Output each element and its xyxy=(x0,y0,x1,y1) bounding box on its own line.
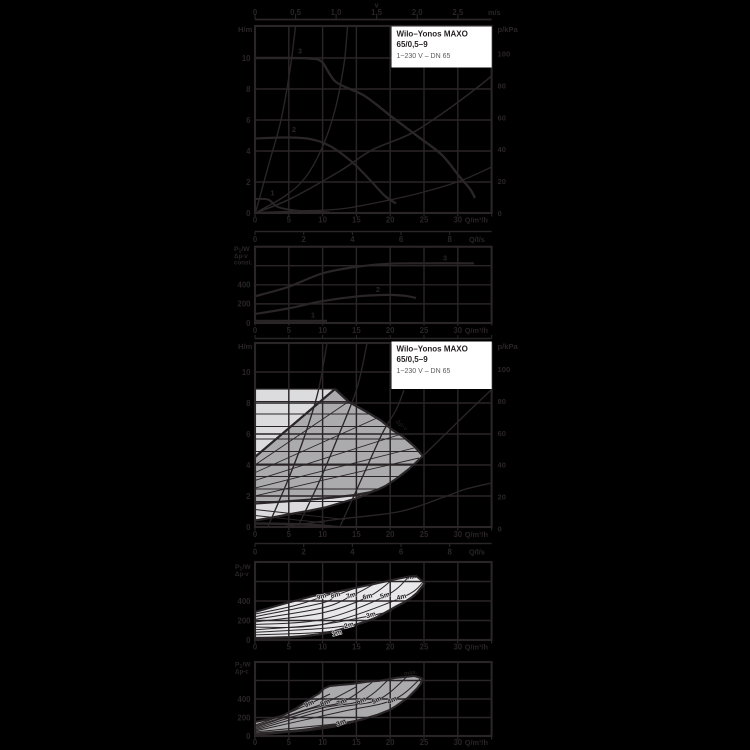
svg-text:0: 0 xyxy=(246,209,251,218)
svg-text:2: 2 xyxy=(246,492,251,501)
svg-text:2: 2 xyxy=(302,547,307,556)
svg-text:10: 10 xyxy=(318,738,327,747)
svg-text:2,0: 2,0 xyxy=(412,8,424,17)
svg-text:3: 3 xyxy=(298,47,302,56)
svg-text:0: 0 xyxy=(246,319,251,328)
svg-text:2: 2 xyxy=(292,125,296,134)
svg-text:8: 8 xyxy=(448,547,453,556)
svg-text:8: 8 xyxy=(246,399,251,408)
svg-text:0: 0 xyxy=(246,636,251,645)
svg-text:100: 100 xyxy=(498,365,511,374)
svg-text:Q/l/s: Q/l/s xyxy=(469,547,485,556)
svg-text:H/m: H/m xyxy=(238,25,253,34)
svg-text:20: 20 xyxy=(498,493,506,502)
svg-text:const.: const. xyxy=(234,260,253,267)
svg-text:Wilo–Yonos MAXO: Wilo–Yonos MAXO xyxy=(397,30,468,39)
svg-text:30: 30 xyxy=(453,326,462,335)
svg-text:25: 25 xyxy=(420,530,429,539)
svg-text:p/kPa: p/kPa xyxy=(498,25,519,34)
svg-text:200: 200 xyxy=(237,616,251,625)
svg-text:m/s: m/s xyxy=(488,8,501,17)
svg-text:6: 6 xyxy=(246,116,251,125)
svg-text:15: 15 xyxy=(352,643,361,652)
svg-text:Q/m³/h: Q/m³/h xyxy=(465,738,488,747)
svg-text:p/kPa: p/kPa xyxy=(498,342,519,351)
svg-text:60: 60 xyxy=(498,113,506,122)
svg-text:10: 10 xyxy=(318,530,327,539)
svg-text:20: 20 xyxy=(386,530,395,539)
svg-text:0,5: 0,5 xyxy=(290,8,302,17)
svg-text:20: 20 xyxy=(498,177,506,186)
svg-text:0: 0 xyxy=(498,209,502,218)
svg-text:400: 400 xyxy=(237,695,251,704)
svg-text:200: 200 xyxy=(237,713,251,722)
svg-text:400: 400 xyxy=(237,281,251,290)
svg-text:8: 8 xyxy=(448,235,453,244)
svg-text:65/0,5–9: 65/0,5–9 xyxy=(397,355,429,364)
svg-text:100: 100 xyxy=(498,50,511,59)
svg-text:30: 30 xyxy=(453,643,462,652)
svg-text:30: 30 xyxy=(453,738,462,747)
svg-text:200: 200 xyxy=(237,300,251,309)
svg-text:0: 0 xyxy=(246,523,251,532)
svg-text:Wilo–Yonos MAXO: Wilo–Yonos MAXO xyxy=(397,345,468,354)
svg-text:0: 0 xyxy=(253,8,258,17)
svg-text:8: 8 xyxy=(246,85,251,94)
svg-text:40: 40 xyxy=(498,461,506,470)
svg-text:2,5: 2,5 xyxy=(452,8,464,17)
svg-text:3: 3 xyxy=(443,254,447,263)
svg-text:0: 0 xyxy=(498,524,502,533)
svg-text:0: 0 xyxy=(253,326,258,335)
svg-text:0: 0 xyxy=(253,530,258,539)
svg-text:Q/m³/h: Q/m³/h xyxy=(465,216,488,225)
svg-text:20: 20 xyxy=(386,738,395,747)
svg-text:20: 20 xyxy=(386,643,395,652)
svg-text:4: 4 xyxy=(350,547,355,556)
svg-text:20: 20 xyxy=(386,216,395,225)
svg-text:80: 80 xyxy=(498,82,506,91)
svg-text:0: 0 xyxy=(253,547,258,556)
svg-text:H/m: H/m xyxy=(238,342,253,351)
svg-text:0: 0 xyxy=(253,643,258,652)
svg-text:2: 2 xyxy=(246,178,251,187)
svg-text:1,0: 1,0 xyxy=(331,8,343,17)
svg-text:5: 5 xyxy=(287,738,292,747)
svg-text:15: 15 xyxy=(352,738,361,747)
svg-text:25: 25 xyxy=(420,643,429,652)
svg-text:25: 25 xyxy=(420,216,429,225)
svg-text:400: 400 xyxy=(237,597,251,606)
svg-text:6: 6 xyxy=(246,430,251,439)
svg-text:30: 30 xyxy=(453,530,462,539)
svg-text:0: 0 xyxy=(253,216,258,225)
svg-text:65/0,5–9: 65/0,5–9 xyxy=(397,40,429,49)
svg-text:5: 5 xyxy=(287,530,292,539)
svg-text:10: 10 xyxy=(318,326,327,335)
svg-text:10: 10 xyxy=(242,368,251,377)
svg-text:Δp-c: Δp-c xyxy=(235,669,249,676)
svg-text:5: 5 xyxy=(287,326,292,335)
svg-text:80: 80 xyxy=(498,397,506,406)
svg-text:6: 6 xyxy=(399,235,404,244)
svg-text:60: 60 xyxy=(498,429,506,438)
svg-text:15: 15 xyxy=(352,326,361,335)
svg-text:30: 30 xyxy=(453,216,462,225)
svg-text:Q/m³/h: Q/m³/h xyxy=(465,326,488,335)
svg-text:1: 1 xyxy=(311,311,315,320)
svg-text:40: 40 xyxy=(498,145,506,154)
svg-text:25: 25 xyxy=(420,738,429,747)
svg-text:15: 15 xyxy=(352,216,361,225)
svg-text:2: 2 xyxy=(302,235,307,244)
svg-text:5: 5 xyxy=(287,216,292,225)
svg-text:20: 20 xyxy=(386,326,395,335)
svg-text:10: 10 xyxy=(318,216,327,225)
svg-text:1~230 V – DN 65: 1~230 V – DN 65 xyxy=(397,368,451,375)
svg-text:Q/l/s: Q/l/s xyxy=(469,235,485,244)
svg-text:4: 4 xyxy=(246,147,251,156)
svg-text:10: 10 xyxy=(242,54,251,63)
svg-text:25: 25 xyxy=(420,326,429,335)
svg-text:4: 4 xyxy=(350,235,355,244)
svg-text:1: 1 xyxy=(270,189,274,198)
svg-text:10: 10 xyxy=(318,643,327,652)
svg-text:0: 0 xyxy=(253,235,258,244)
svg-text:2: 2 xyxy=(376,285,380,294)
svg-text:1~230 V – DN 65: 1~230 V – DN 65 xyxy=(397,53,451,60)
svg-text:5: 5 xyxy=(287,643,292,652)
svg-text:0: 0 xyxy=(253,738,258,747)
svg-text:Δp-v: Δp-v xyxy=(235,571,249,578)
svg-text:15: 15 xyxy=(352,530,361,539)
svg-text:Q/m³/h: Q/m³/h xyxy=(465,643,488,652)
svg-text:4: 4 xyxy=(246,461,251,470)
svg-text:6: 6 xyxy=(399,547,404,556)
svg-text:Q/m³/h: Q/m³/h xyxy=(465,530,488,539)
svg-text:0: 0 xyxy=(246,732,251,741)
